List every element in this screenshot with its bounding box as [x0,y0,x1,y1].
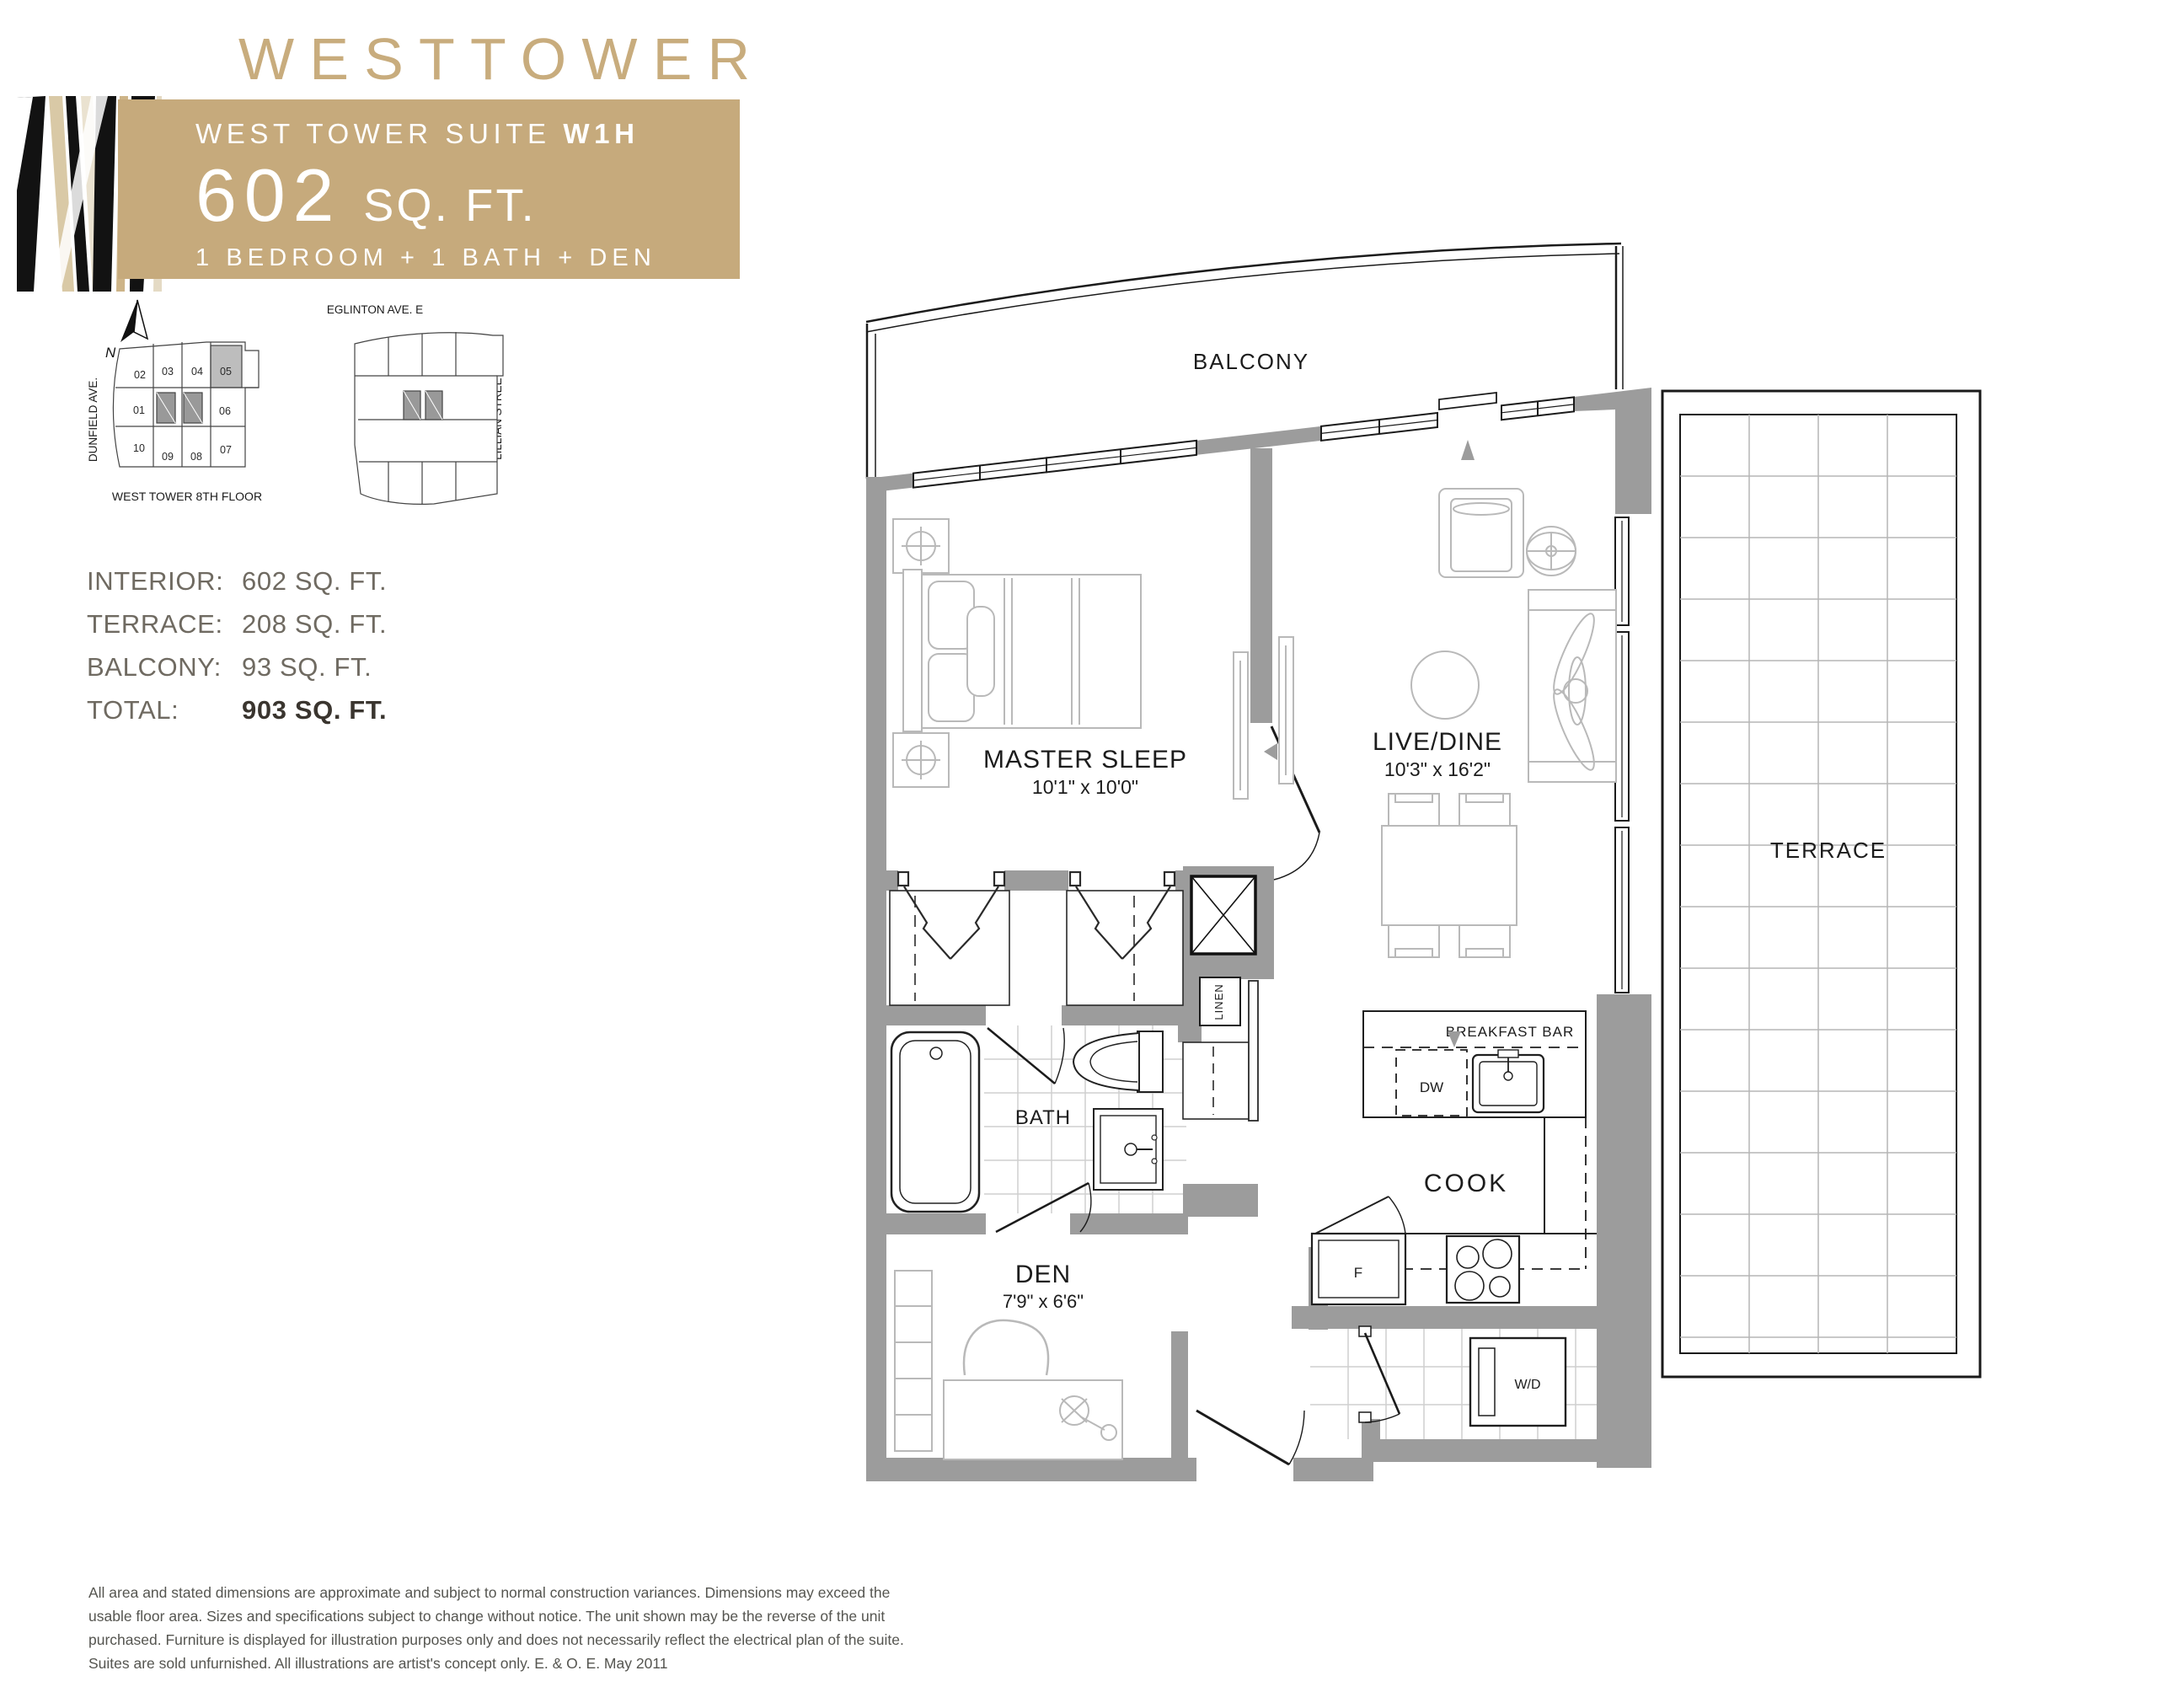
wall-kitchen-south [1292,1306,1601,1329]
entry-door [1196,1411,1304,1464]
label-fridge: F [1354,1265,1362,1281]
unit-04: 04 [191,366,203,377]
linen-label: LINEN [1212,983,1225,1020]
suite-configuration: 1 BEDROOM + 1 BATH + DEN [195,244,656,272]
cooktop [1447,1236,1519,1303]
suite-banner: WEST TOWER SUITE W1H 602 SQ. FT. 1 BEDRO… [118,99,740,279]
dining-set [1382,794,1517,957]
wall-den-east [1171,1331,1188,1462]
area-value: 208 SQ. FT. [242,609,387,640]
unit-02: 02 [134,369,146,381]
laundry-door [1359,1326,1400,1422]
wall-master-south [1004,870,1068,891]
room-label-livedine: LIVE/DINE [1373,728,1502,756]
wall-hall [1183,1184,1258,1217]
suite-area-line: 602 SQ. FT. [195,158,537,233]
suite-label: WEST TOWER SUITE [195,118,563,149]
terrace-window-wall [1615,517,1629,993]
label-breakfast-bar: BREAKFAST BAR [1446,1024,1575,1040]
wall-bath-south [1070,1213,1188,1234]
brand-wordmark: WESTTOWER [238,25,744,93]
wall-east [1597,994,1651,1468]
keyplan-east-tower [355,332,503,504]
toilet [1073,1031,1163,1092]
room-dims-livedine: 10'3" x 16'2" [1384,758,1491,780]
suite-name-line: WEST TOWER SUITE W1H [195,118,640,150]
unit-05: 05 [220,366,232,377]
room-dims-den: 7'9" x 6'6" [1003,1291,1084,1312]
area-value: 93 SQ. FT. [242,652,372,683]
kitchen-sink [1473,1050,1544,1112]
wall-south-laundry [1373,1439,1626,1462]
suite-area-unit: SQ. FT. [363,179,537,232]
north-label: N [105,345,116,361]
shaft [1191,876,1255,954]
terrace: TERRACE [1662,391,1980,1377]
unit-10: 10 [133,442,145,454]
wall-closet-south [886,1005,986,1025]
dining-table [1382,826,1517,925]
suite-area-number: 602 [195,158,341,233]
unit-06: 06 [219,405,231,417]
wall-south-den [866,1458,1196,1481]
wall-closet-south [1062,1005,1188,1025]
street-eglinton: EGLINTON AVE. E [327,303,423,316]
label-washer-dryer: W/D [1514,1378,1540,1392]
room-label-master: MASTER SLEEP [983,746,1187,774]
balcony-door-arrow-icon [1461,440,1475,460]
street-dunfield: DUNFIELD AVE. [87,377,99,462]
bed-bolster [967,607,994,696]
wall-laundry-west [1362,1419,1380,1462]
fridge [1312,1197,1405,1304]
area-label: TERRACE: [87,609,242,640]
unit-09: 09 [162,451,174,463]
area-row-total: TOTAL: 903 SQ. FT. [87,695,441,725]
area-value: 903 SQ. FT. [242,695,387,725]
den: DEN 7'9" x 6'6" [895,1261,1122,1459]
suite-code: W1H [563,118,639,149]
desk-chair [964,1320,1048,1375]
area-label: INTERIOR: [87,566,242,597]
wall-south-entry [1293,1458,1373,1481]
area-label: BALCONY: [87,652,242,683]
wall-west [866,477,886,1481]
unit-07: 07 [220,444,232,456]
closets [890,872,1183,1005]
balcony-door-panel [1439,393,1496,410]
bookshelf [895,1271,932,1451]
room-label-cook: COOK [1424,1170,1508,1197]
unit-03: 03 [162,366,174,377]
area-row-balcony: BALCONY: 93 SQ. FT. [87,652,441,683]
floor-lamp-icon [1527,527,1576,576]
area-value: 602 SQ. FT. [242,566,387,597]
kitchen: BREAKFAST BAR DW COOK F [1312,1011,1597,1304]
area-label: TOTAL: [87,695,242,725]
wall-master-living [1250,448,1272,723]
floor-plan: BALCONY [859,236,1988,1491]
vanity-sink [1094,1109,1163,1190]
room-label-den: DEN [1015,1261,1071,1288]
door-swing-arrow-icon [1264,743,1277,760]
room-label-balcony: BALCONY [1193,349,1309,374]
desk [944,1380,1122,1459]
console-plant [1528,590,1616,782]
area-summary-table: INTERIOR: 602 SQ. FT. TERRACE: 208 SQ. F… [87,566,441,738]
bed-headboard [903,570,922,731]
wall-linen-south [1178,1025,1202,1042]
keyplan-caption: WEST TOWER 8TH FLOOR [112,490,262,503]
room-dims-master: 10'1" x 10'0" [1032,776,1138,798]
living-media-panel [1279,637,1293,784]
label-dishwasher: DW [1420,1079,1443,1095]
sliding-door [1249,981,1258,1121]
area-row-interior: INTERIOR: 602 SQ. FT. [87,566,441,597]
wall-master-south [886,870,898,891]
coffee-table [1411,651,1479,719]
wall-bath-south [886,1213,986,1234]
wall-top-right-corner [1574,388,1651,514]
unit-08: 08 [190,451,202,463]
area-row-terrace: TERRACE: 208 SQ. FT. [87,609,441,640]
linen-closet: LINEN [1200,977,1240,1025]
room-label-terrace: TERRACE [1770,838,1887,863]
unit-01: 01 [133,404,145,416]
room-label-bath: BATH [1015,1106,1071,1129]
keyplan: N EGLINTON AVE. E DUNFIELD AVE. LILLIAN … [72,293,527,522]
live-dine [1382,489,1616,957]
disclaimer-text: All area and stated dimensions are appro… [88,1581,907,1675]
